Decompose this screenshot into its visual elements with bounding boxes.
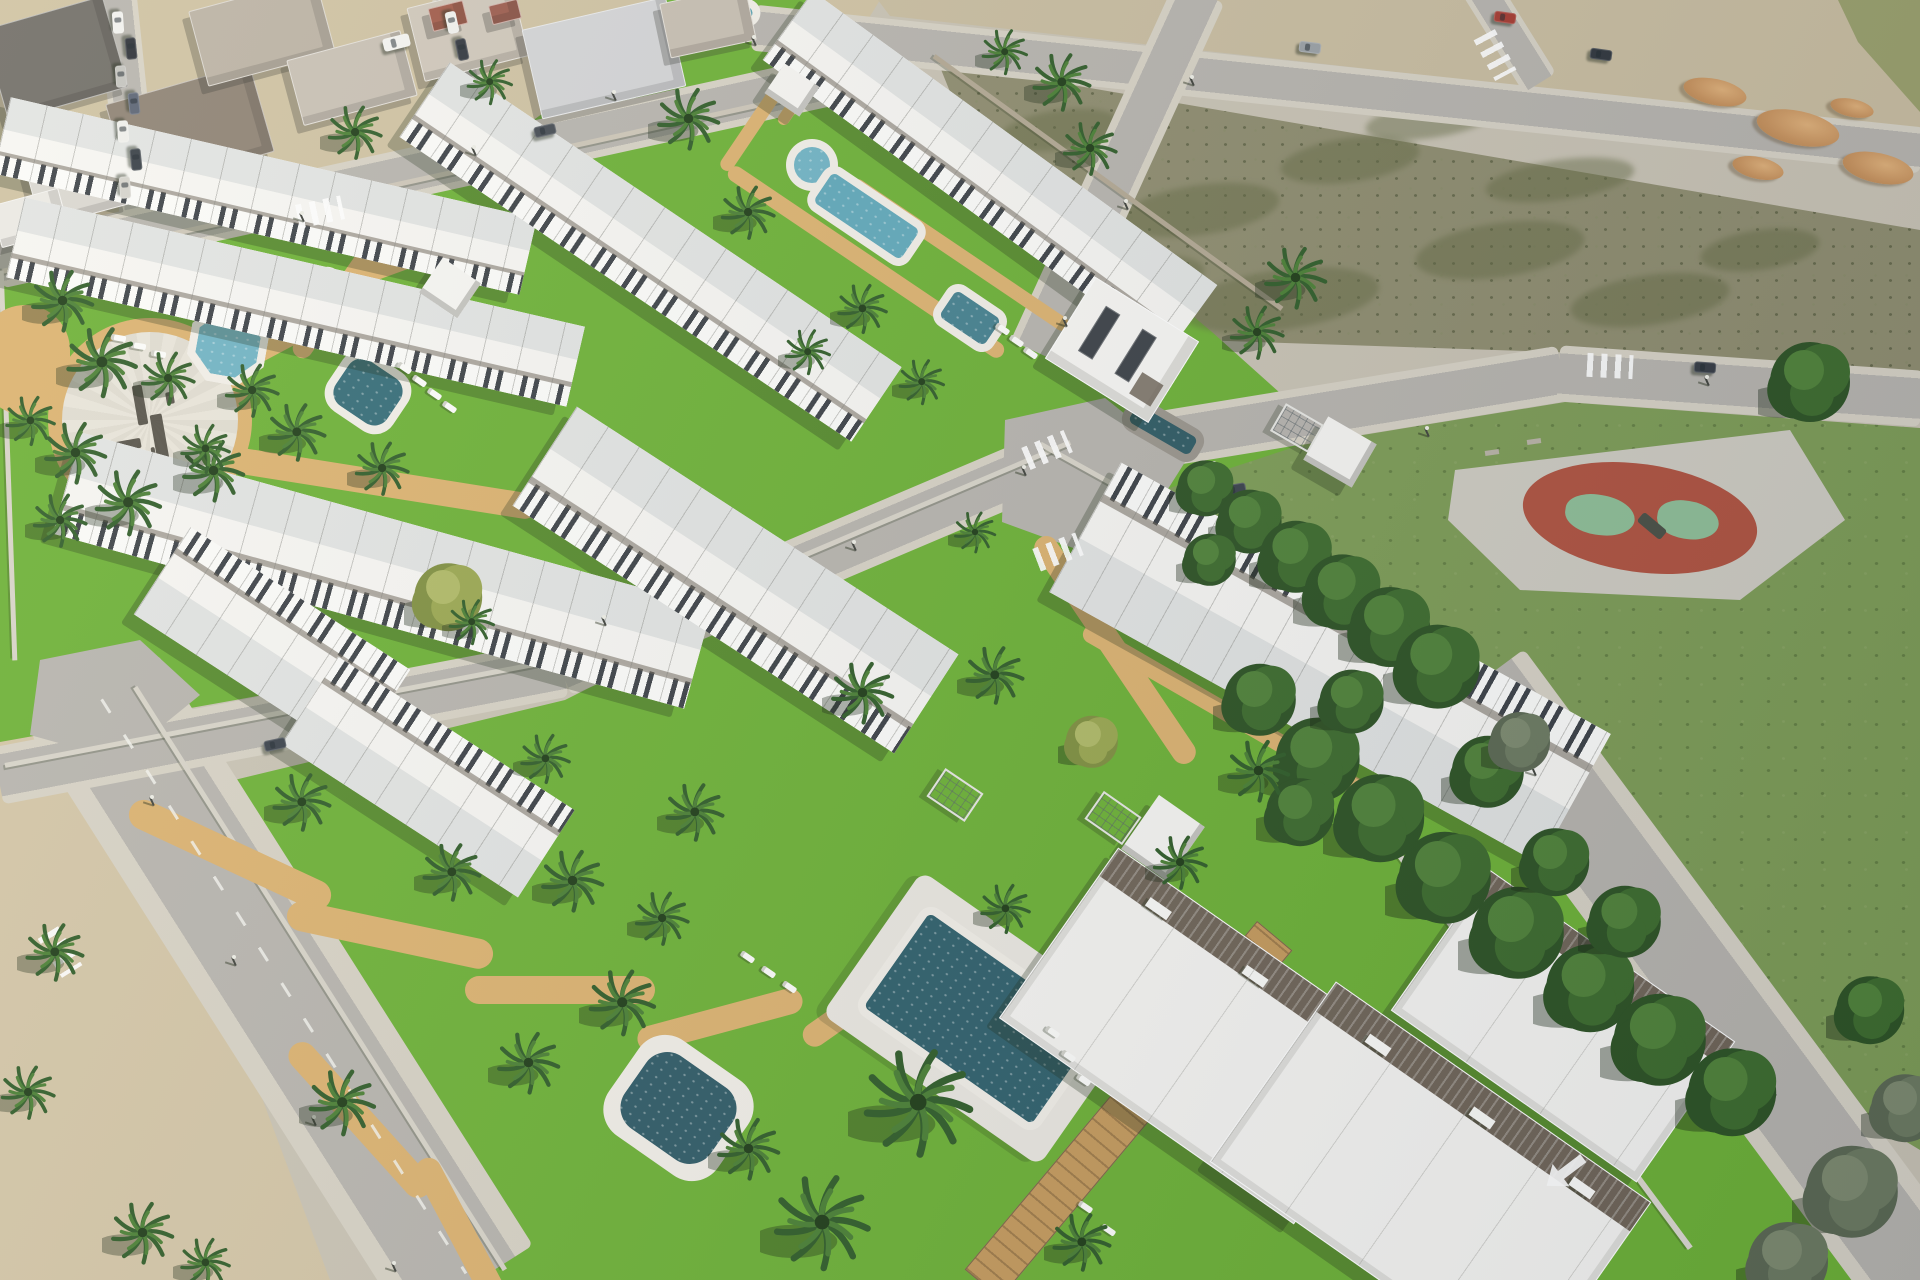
lamp-head <box>392 1261 396 1265</box>
car-windshield <box>1596 50 1602 58</box>
palm-tree <box>1024 44 1100 120</box>
park-tree <box>1675 1035 1789 1149</box>
street-lamp <box>1015 465 1029 479</box>
street-lamp <box>605 90 619 104</box>
park-tree <box>1383 612 1492 721</box>
palm-tree <box>1222 297 1292 367</box>
car-windshield <box>130 98 138 104</box>
park-tree <box>1310 660 1393 743</box>
palm-tree <box>414 834 490 910</box>
palm-tree <box>460 52 519 111</box>
lamp-head <box>602 615 606 619</box>
palm-tree <box>264 764 340 840</box>
lamp-head <box>232 955 236 959</box>
street-lamp <box>745 35 759 49</box>
palm-tree <box>217 355 287 425</box>
grey-tree <box>1481 703 1559 781</box>
park-tree <box>1578 875 1672 969</box>
palm-tree <box>1145 827 1215 897</box>
car <box>1694 361 1717 374</box>
park-tree <box>1176 526 1244 594</box>
car-windshield <box>457 43 466 49</box>
car <box>1589 47 1612 61</box>
street-lamp <box>1117 199 1131 213</box>
car <box>1493 10 1516 24</box>
car-windshield <box>1500 13 1506 21</box>
car-windshield <box>539 126 545 135</box>
car <box>117 120 130 143</box>
palm-tree <box>892 352 951 411</box>
palm-tree <box>347 433 417 503</box>
palm-tree <box>1055 113 1125 183</box>
street-lamp <box>1183 75 1197 89</box>
car <box>129 147 142 170</box>
car <box>124 36 137 59</box>
car-windshield <box>1700 363 1705 371</box>
street-lamp <box>1698 375 1712 389</box>
car-windshield <box>132 154 140 160</box>
car-windshield <box>127 43 135 49</box>
palm-tree <box>848 1032 988 1172</box>
palm-tree <box>85 459 171 545</box>
palm-tree <box>713 177 783 247</box>
car-windshield <box>389 38 397 48</box>
palm-tree <box>822 652 903 733</box>
palm-tree <box>708 1108 789 1189</box>
palm-tree <box>532 840 613 921</box>
aerial-development-render <box>0 0 1920 1280</box>
street-lamp <box>385 1261 399 1275</box>
street-lamp <box>845 540 859 554</box>
street-lamp <box>595 615 609 629</box>
car-windshield <box>121 182 129 187</box>
lamp-head <box>150 795 154 799</box>
palm-tree <box>102 1192 183 1273</box>
street-lamp <box>465 145 479 159</box>
palm-tree <box>25 485 95 555</box>
palm-tree <box>513 726 578 791</box>
lamp-head <box>1190 75 1194 79</box>
palm-tree <box>1044 1204 1120 1280</box>
palm-tree <box>173 1230 238 1280</box>
palm-tree <box>1218 730 1299 811</box>
street-lamp <box>1418 426 1432 440</box>
street-lamp <box>293 211 307 225</box>
park-tree <box>1826 966 1914 1054</box>
car <box>112 11 125 34</box>
park-tree <box>1758 330 1862 434</box>
lamp-head <box>852 540 856 544</box>
palm-tree <box>442 592 501 651</box>
lamp-head <box>472 145 476 149</box>
crosswalk <box>1586 353 1633 379</box>
palm-tree <box>0 388 62 453</box>
street-lamp <box>1056 316 1070 330</box>
lamp-head <box>1022 465 1026 469</box>
car-windshield <box>447 16 456 22</box>
car-windshield <box>1305 43 1311 51</box>
palm-tree <box>579 959 665 1045</box>
palm-tree <box>975 22 1034 81</box>
palm-tree <box>17 914 93 990</box>
yellow-tree <box>1058 708 1126 776</box>
lamp-head <box>1124 199 1128 203</box>
villa-window <box>1078 306 1120 360</box>
lamp-head <box>1425 426 1429 430</box>
grey-tree <box>1861 1064 1920 1152</box>
lamp-head <box>1063 316 1067 320</box>
grey-tree <box>1736 1210 1840 1280</box>
street-lamp <box>143 795 157 809</box>
car <box>127 91 140 114</box>
street-lamp <box>225 955 239 969</box>
lamp-head <box>612 90 616 94</box>
palm-tree <box>627 883 697 953</box>
palm-tree <box>320 97 390 167</box>
villa-window <box>1114 329 1156 383</box>
palm-tree <box>657 774 733 850</box>
palm-tree <box>830 276 895 341</box>
palm-tree <box>488 1022 569 1103</box>
car-windshield <box>114 17 122 22</box>
palm-tree <box>778 322 837 381</box>
palm-tree <box>299 1059 385 1145</box>
car <box>115 65 128 88</box>
palm-tree <box>173 416 238 481</box>
lamp-head <box>1705 375 1709 379</box>
car-windshield <box>119 126 127 131</box>
car-windshield <box>117 71 125 76</box>
palm-tree <box>948 505 1002 559</box>
palm-tree <box>957 637 1033 713</box>
car-windshield <box>269 740 275 749</box>
car <box>119 176 132 199</box>
palm-tree <box>973 876 1038 941</box>
palm-tree <box>0 1057 63 1127</box>
palm-tree <box>648 78 729 159</box>
lamp-head <box>752 35 756 39</box>
car <box>1298 40 1321 54</box>
palm-tree <box>133 343 203 413</box>
lamp-head <box>300 211 304 215</box>
villa-balcony <box>1130 372 1164 406</box>
